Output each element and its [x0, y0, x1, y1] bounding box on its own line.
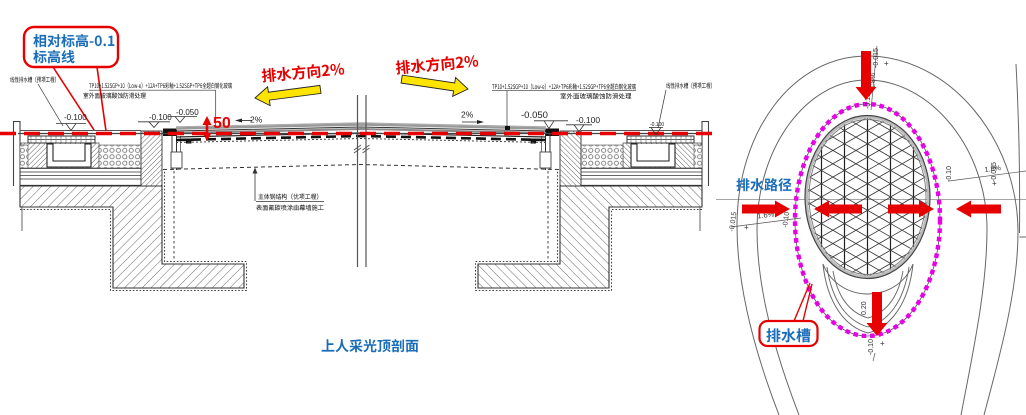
svg-text:-0.10: -0.10 — [868, 339, 875, 355]
svg-text:-0.100: -0.100 — [149, 113, 172, 122]
svg-text:+: + — [992, 179, 997, 188]
svg-text:2%: 2% — [250, 115, 263, 125]
svg-text:+: + — [744, 223, 749, 232]
svg-text:1.8%: 1.8% — [870, 73, 877, 89]
svg-text:+: + — [880, 339, 885, 348]
svg-text:-0.015: -0.015 — [873, 48, 880, 68]
svg-text:-0.100: -0.100 — [64, 113, 87, 122]
svg-text:0.20: 0.20 — [861, 301, 868, 315]
svg-text:+: + — [884, 59, 889, 68]
svg-text:-0.050: -0.050 — [521, 110, 548, 121]
svg-text:-0.100: -0.100 — [576, 115, 600, 125]
svg-text:-0.10: -0.10 — [946, 166, 953, 182]
svg-text:2%: 2% — [461, 110, 474, 120]
svg-text:-0.050: -0.050 — [176, 108, 199, 117]
svg-text:50: 50 — [213, 115, 231, 132]
